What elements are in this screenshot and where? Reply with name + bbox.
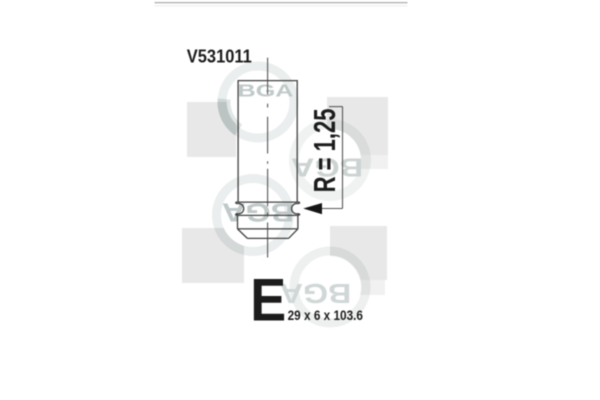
svg-text:BGA: BGA [238, 80, 294, 101]
svg-text:BGA: BGA [280, 278, 352, 309]
svg-text:29 x 6 x 103.6: 29 x 6 x 103.6 [288, 307, 363, 323]
svg-text:E: E [250, 267, 286, 334]
svg-text:R = 1,25: R = 1,25 [308, 108, 342, 192]
svg-text:V531011: V531011 [187, 46, 252, 67]
